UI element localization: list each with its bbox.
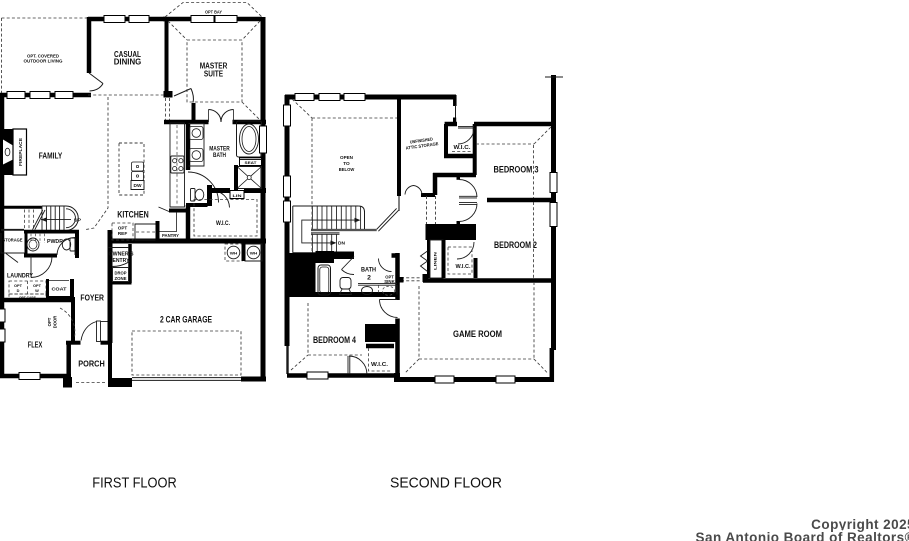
svg-text:UP: UP — [74, 218, 81, 223]
svg-text:LIN: LIN — [233, 193, 242, 198]
svg-text:W.I.C.: W.I.C. — [216, 221, 230, 227]
svg-text:SINK: SINK — [384, 279, 395, 284]
svg-text:2: 2 — [367, 275, 371, 282]
svg-text:W.I.C.: W.I.C. — [371, 362, 388, 368]
svg-text:OPT: OPT — [118, 226, 128, 231]
svg-text:ENTRY: ENTRY — [113, 258, 130, 264]
svg-text:KITCHEN: KITCHEN — [117, 210, 149, 220]
svg-text:W.I.C.: W.I.C. — [454, 145, 471, 151]
svg-text:WH: WH — [250, 251, 258, 255]
svg-text:LAUNDRY: LAUNDRY — [7, 273, 34, 280]
svg-text:PWDR: PWDR — [47, 239, 63, 245]
svg-text:ZONE: ZONE — [115, 276, 127, 281]
svg-text:OPEN: OPEN — [340, 155, 354, 160]
svg-text:W.I.C.: W.I.C. — [456, 264, 471, 270]
svg-text:BEDROOM 2: BEDROOM 2 — [494, 240, 537, 250]
svg-text:2 CAR GARAGE: 2 CAR GARAGE — [160, 314, 212, 325]
svg-text:BELOW: BELOW — [339, 167, 355, 172]
svg-text:STORAGE: STORAGE — [3, 238, 23, 243]
svg-text:FIREPLACE: FIREPLACE — [18, 138, 23, 166]
svg-text:FIRST FLOOR: FIRST FLOOR — [92, 475, 177, 492]
svg-text:PORCH: PORCH — [78, 359, 105, 369]
svg-text:TO: TO — [343, 161, 350, 166]
svg-text:DN: DN — [338, 240, 345, 245]
svg-text:DINING: DINING — [114, 58, 142, 67]
svg-text:FLEX: FLEX — [28, 341, 43, 350]
svg-text:PANTRY: PANTRY — [162, 233, 179, 238]
svg-text:DROP: DROP — [115, 271, 127, 276]
svg-text:SEAT: SEAT — [245, 160, 258, 165]
svg-text:OPT BAY: OPT BAY — [205, 9, 222, 14]
svg-text:W: W — [35, 288, 39, 293]
svg-text:OPT: OPT — [47, 317, 52, 326]
svg-text:DOOR: DOOR — [53, 316, 58, 329]
svg-text:BEDROOM 3: BEDROOM 3 — [494, 165, 539, 175]
svg-text:BEDROOM 4: BEDROOM 4 — [313, 335, 357, 345]
svg-text:OWNER'S: OWNER'S — [109, 252, 134, 258]
svg-text:SUITE: SUITE — [204, 70, 224, 79]
svg-text:WH: WH — [230, 251, 238, 255]
svg-text:SECOND FLOOR: SECOND FLOOR — [390, 475, 502, 492]
svg-text:LINEN: LINEN — [433, 252, 438, 270]
svg-text:BATH: BATH — [213, 152, 226, 159]
svg-text:DW: DW — [134, 183, 142, 188]
svg-text:D: D — [17, 288, 20, 293]
svg-text:FOYER: FOYER — [80, 294, 104, 303]
svg-text:FAMILY: FAMILY — [39, 152, 63, 161]
svg-text:GAME ROOM: GAME ROOM — [453, 329, 502, 339]
svg-text:BATH: BATH — [361, 267, 376, 274]
svg-text:OUTDOOR LIVING: OUTDOOR LIVING — [24, 58, 64, 63]
svg-text:REF: REF — [118, 231, 128, 236]
svg-text:COAT: COAT — [52, 287, 67, 292]
